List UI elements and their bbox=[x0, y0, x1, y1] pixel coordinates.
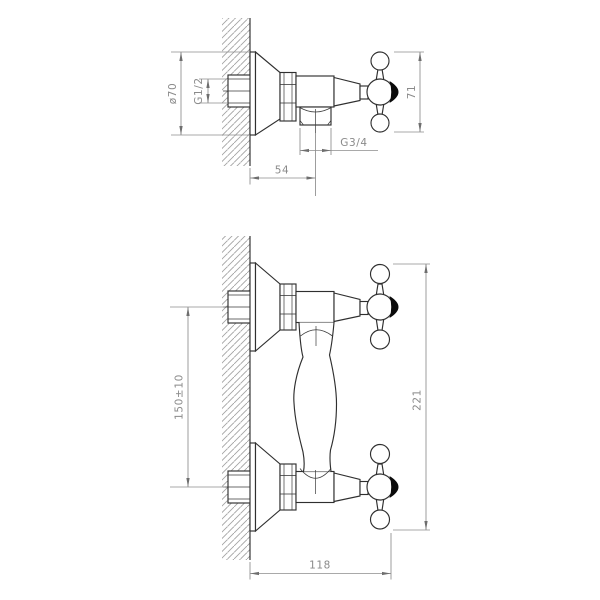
valve-body bbox=[296, 472, 334, 503]
valve-body bbox=[296, 292, 334, 323]
escutcheon-backplate bbox=[250, 443, 256, 531]
dim-label-g12: G1/2 bbox=[193, 77, 205, 104]
handle-bottom-bulb bbox=[371, 114, 389, 132]
wall-hatch bbox=[222, 236, 250, 560]
hex-nut bbox=[280, 284, 296, 330]
valve-body bbox=[296, 76, 334, 107]
dim-label-dia70: ø70 bbox=[167, 83, 179, 105]
handle-top-bulb bbox=[371, 445, 390, 464]
handle-bottom-bulb bbox=[371, 510, 390, 529]
inlet-nipple bbox=[223, 75, 253, 107]
handle-hub bbox=[367, 294, 393, 320]
dim-label-71: 71 bbox=[406, 85, 418, 100]
handle-top-bulb bbox=[371, 265, 390, 284]
handle-hub bbox=[367, 474, 393, 500]
dim-label-g34: G3/4 bbox=[340, 137, 367, 149]
escutcheon-backplate bbox=[250, 263, 256, 351]
handle-bottom-bulb bbox=[371, 330, 390, 349]
escutcheon-backplate bbox=[250, 52, 256, 135]
dim-label-221: 221 bbox=[412, 389, 424, 411]
handle-hub bbox=[367, 79, 393, 105]
drawing-page: ø70 G1/2 71 G3/4 54 bbox=[0, 0, 600, 600]
dim-label-54: 54 bbox=[275, 165, 290, 177]
handle-top-bulb bbox=[371, 52, 389, 70]
hex-nut bbox=[280, 73, 296, 122]
technical-drawing-canvas: ø70 G1/2 71 G3/4 54 bbox=[0, 0, 600, 600]
dim-label-150: 150±10 bbox=[174, 374, 186, 420]
hex-nut bbox=[280, 464, 296, 510]
dim-label-118: 118 bbox=[309, 560, 331, 572]
